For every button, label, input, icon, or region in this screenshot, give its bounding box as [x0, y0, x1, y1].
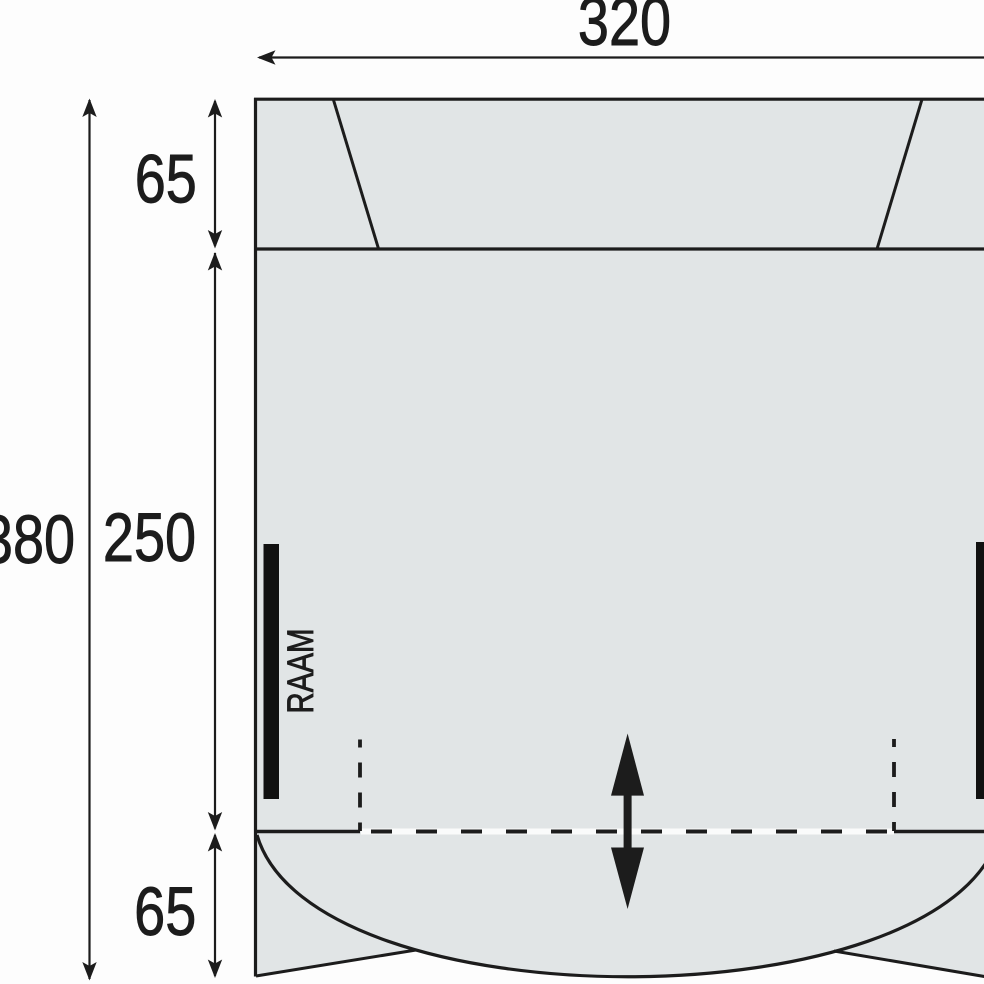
- svg-text:RAAM: RAAM: [280, 629, 321, 714]
- svg-text:65: 65: [135, 141, 197, 218]
- svg-text:380: 380: [0, 501, 75, 578]
- svg-text:320: 320: [578, 0, 671, 60]
- svg-text:65: 65: [134, 873, 196, 950]
- svg-text:250: 250: [103, 499, 196, 576]
